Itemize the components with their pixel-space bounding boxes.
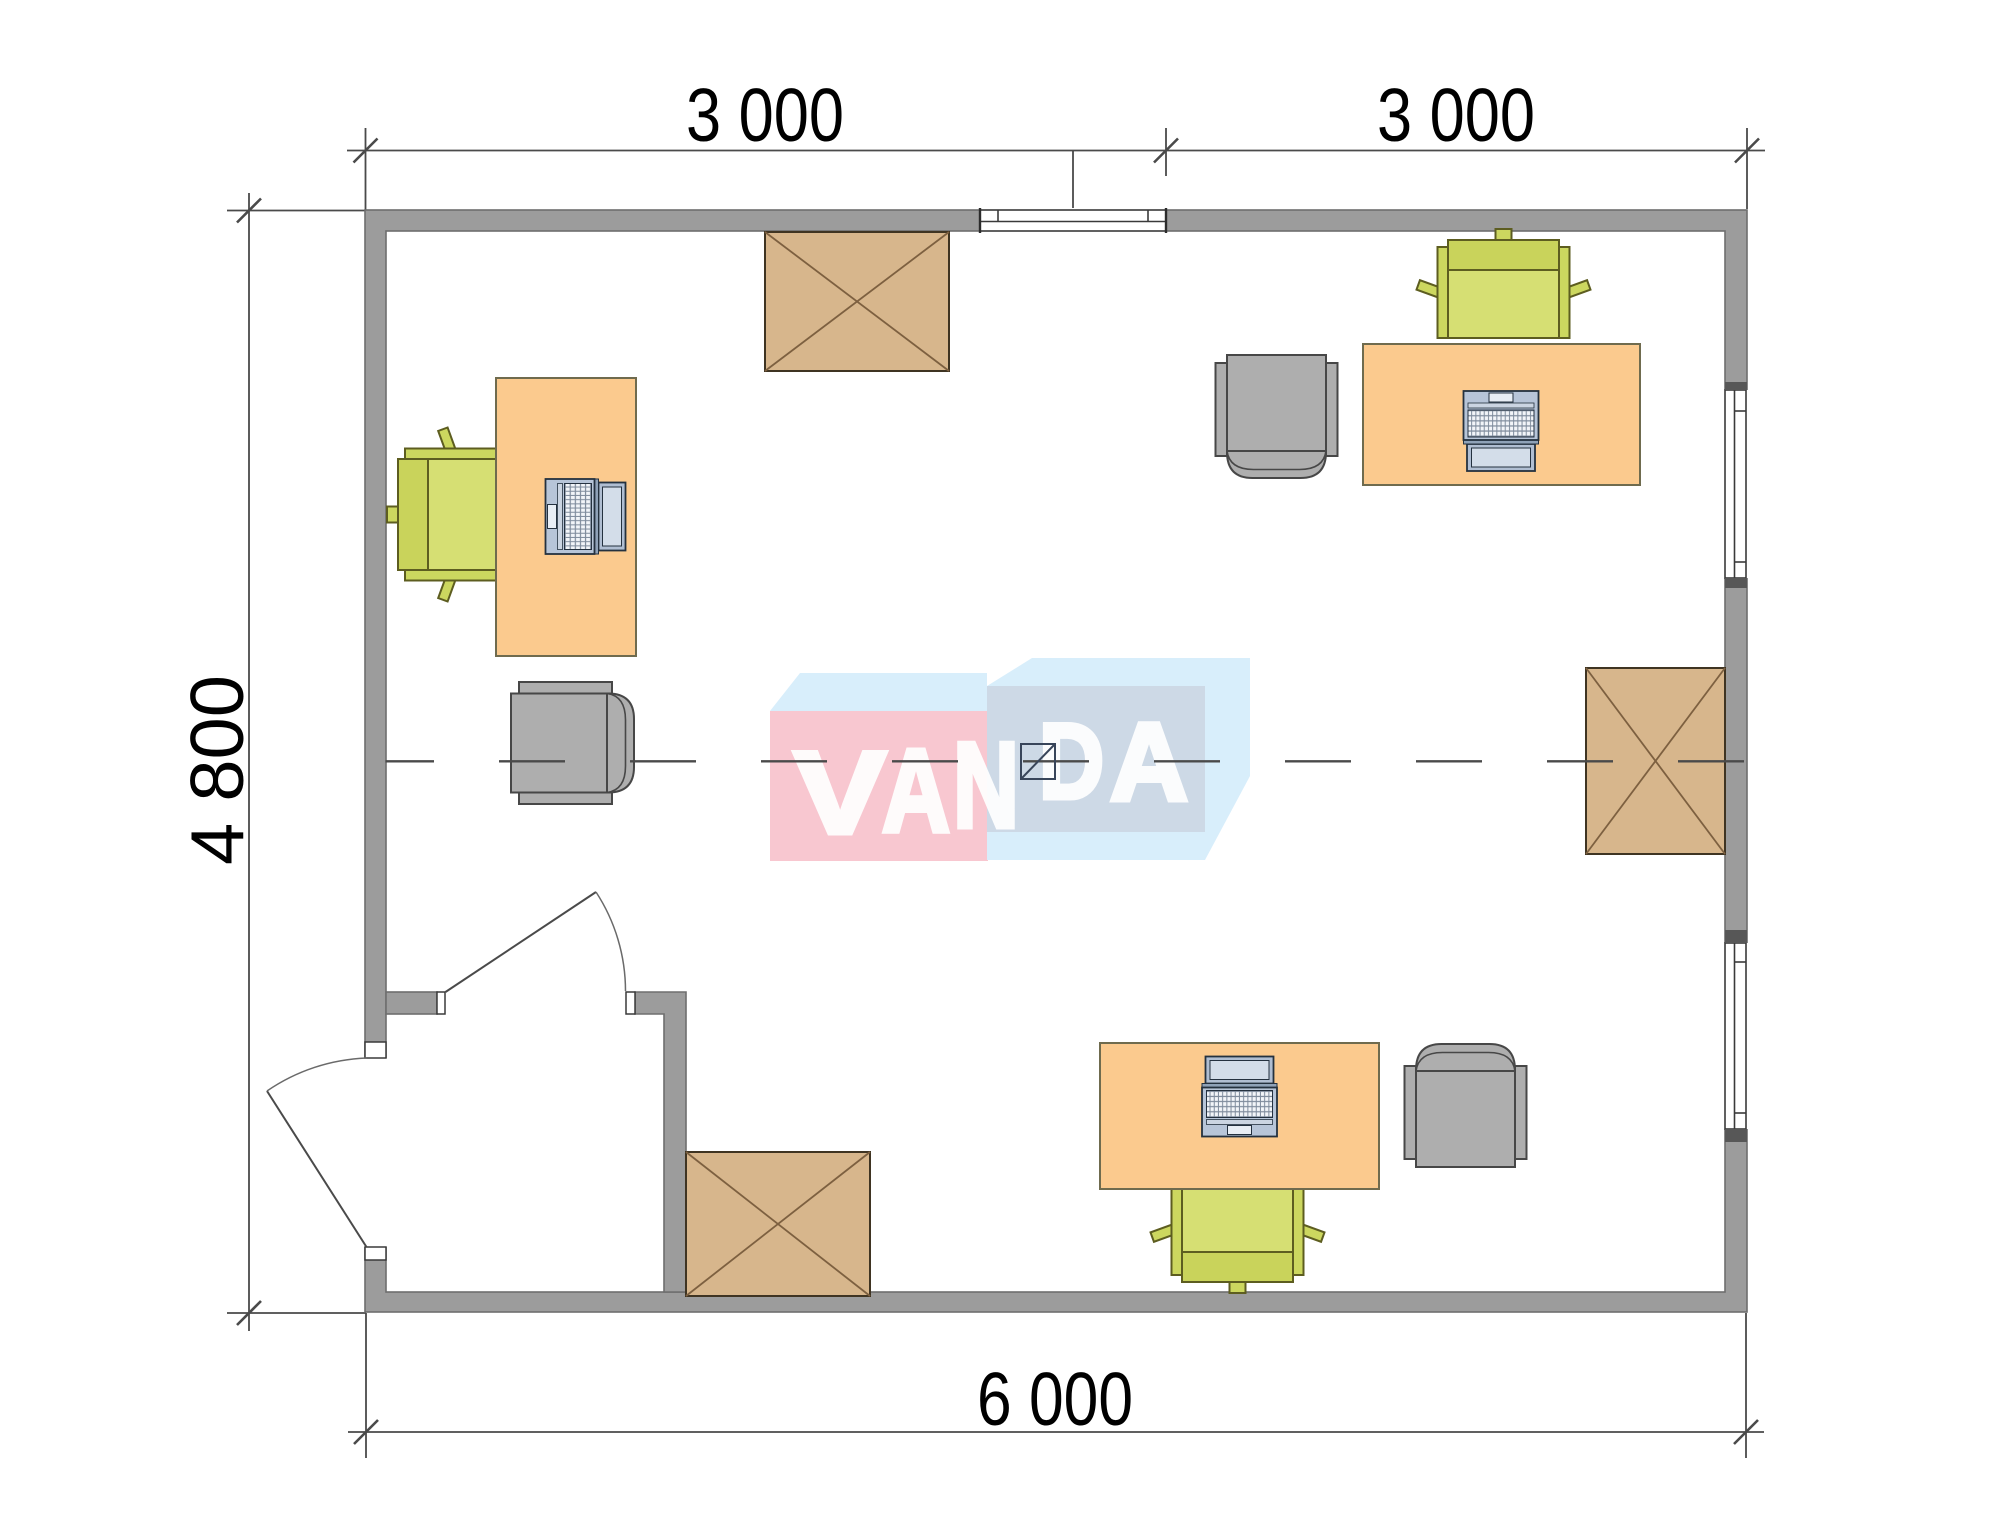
svg-text:N: N (953, 717, 1019, 853)
svg-text:3 000: 3 000 (1377, 73, 1535, 157)
svg-text:3 000: 3 000 (686, 73, 844, 157)
svg-text:A: A (882, 725, 950, 857)
svg-text:6 000: 6 000 (977, 1357, 1133, 1441)
svg-text:V: V (794, 727, 886, 858)
svg-text:4 800: 4 800 (175, 675, 259, 865)
